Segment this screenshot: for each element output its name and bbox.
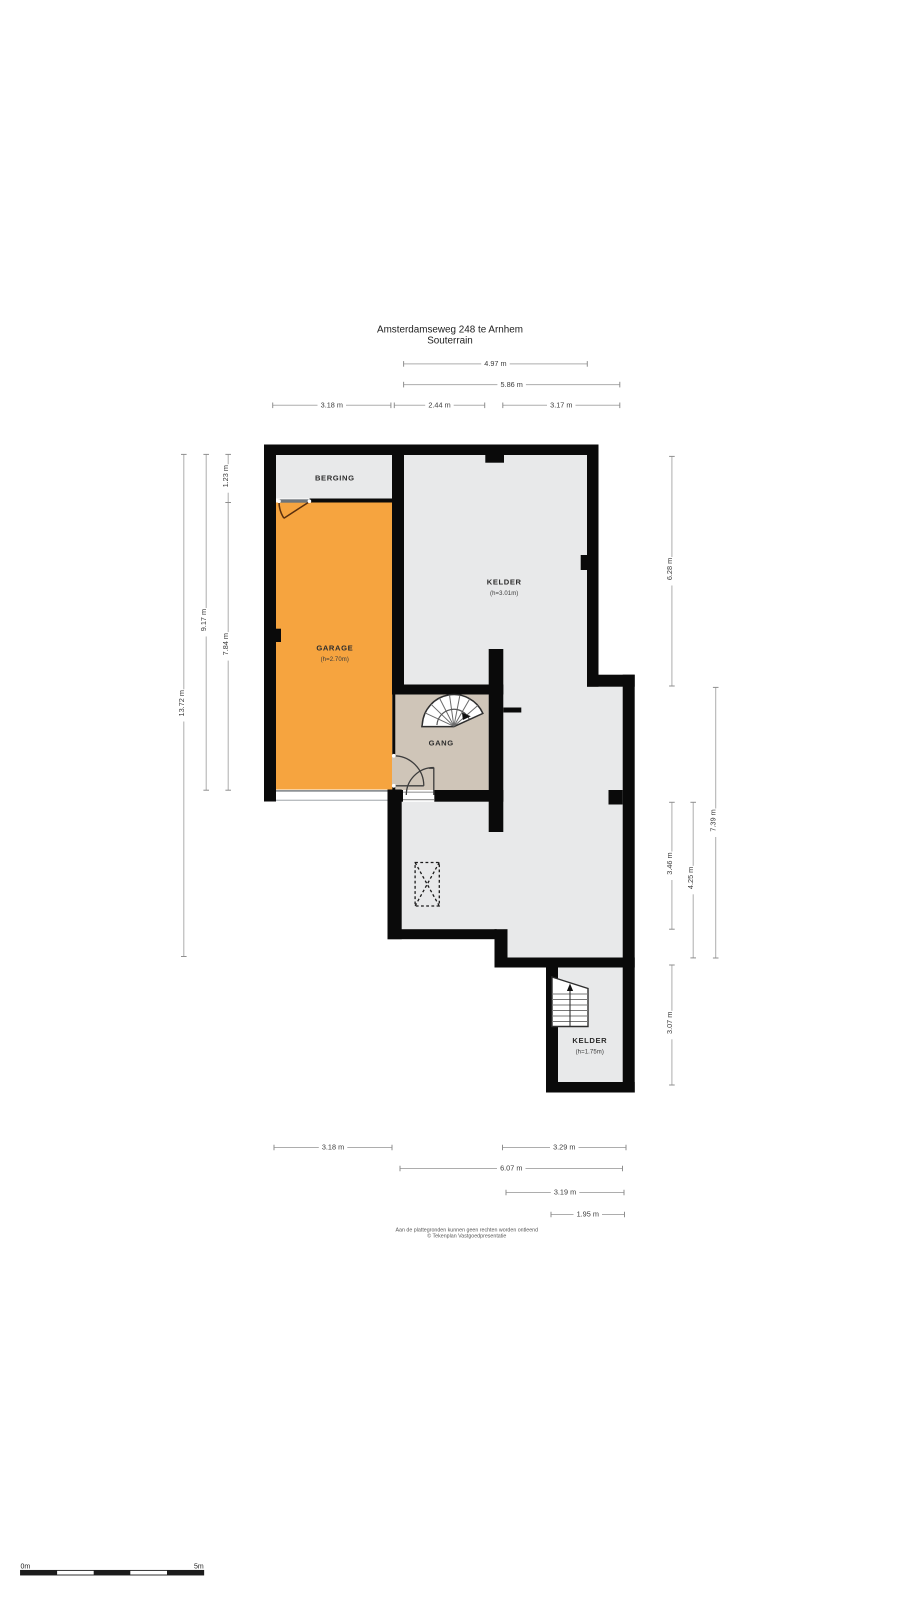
svg-text:3.17 m: 3.17 m xyxy=(550,401,572,410)
svg-text:3.19 m: 3.19 m xyxy=(554,1188,576,1197)
svg-text:7.39 m: 7.39 m xyxy=(709,809,718,831)
svg-text:1.23 m: 1.23 m xyxy=(221,465,230,487)
svg-text:6.07 m: 6.07 m xyxy=(500,1164,522,1173)
svg-text:9.17 m: 9.17 m xyxy=(199,609,208,631)
svg-text:(h=1.75m): (h=1.75m) xyxy=(576,1050,604,1056)
svg-text:© Tekenplan Vastgoedpresentati: © Tekenplan Vastgoedpresentatie xyxy=(427,1233,506,1240)
svg-text:Aan de plattegronden kunnen ge: Aan de plattegronden kunnen geen rechten… xyxy=(396,1227,539,1233)
svg-text:3.07 m: 3.07 m xyxy=(665,1012,674,1034)
svg-text:1.95 m: 1.95 m xyxy=(577,1210,599,1219)
svg-text:KELDER: KELDER xyxy=(572,1036,607,1045)
svg-text:13.72 m: 13.72 m xyxy=(177,690,186,716)
svg-text:(h=3.01m): (h=3.01m) xyxy=(490,591,518,597)
svg-text:5m: 5m xyxy=(194,1563,204,1570)
svg-text:0m: 0m xyxy=(21,1563,31,1570)
svg-text:Amsterdamseweg 248 te Arnhem: Amsterdamseweg 248 te Arnhem xyxy=(377,325,523,336)
svg-text:Souterrain: Souterrain xyxy=(427,336,473,347)
svg-text:(h=2.70m): (h=2.70m) xyxy=(321,657,349,663)
svg-text:6.28 m: 6.28 m xyxy=(665,558,674,580)
svg-text:KELDER: KELDER xyxy=(487,578,522,587)
svg-text:5.86 m: 5.86 m xyxy=(501,380,523,389)
svg-text:3.18 m: 3.18 m xyxy=(322,1143,344,1152)
svg-text:3.46 m: 3.46 m xyxy=(665,852,674,874)
svg-text:BERGING: BERGING xyxy=(315,474,355,483)
svg-text:4.25 m: 4.25 m xyxy=(686,867,695,889)
svg-text:4.97 m: 4.97 m xyxy=(484,359,506,368)
svg-text:2.44 m: 2.44 m xyxy=(428,401,450,410)
svg-text:GARAGE: GARAGE xyxy=(316,644,353,653)
svg-text:3.18 m: 3.18 m xyxy=(321,401,343,410)
svg-text:3.29 m: 3.29 m xyxy=(553,1143,575,1152)
svg-text:7.84 m: 7.84 m xyxy=(221,633,230,655)
svg-text:GANG: GANG xyxy=(429,739,454,748)
